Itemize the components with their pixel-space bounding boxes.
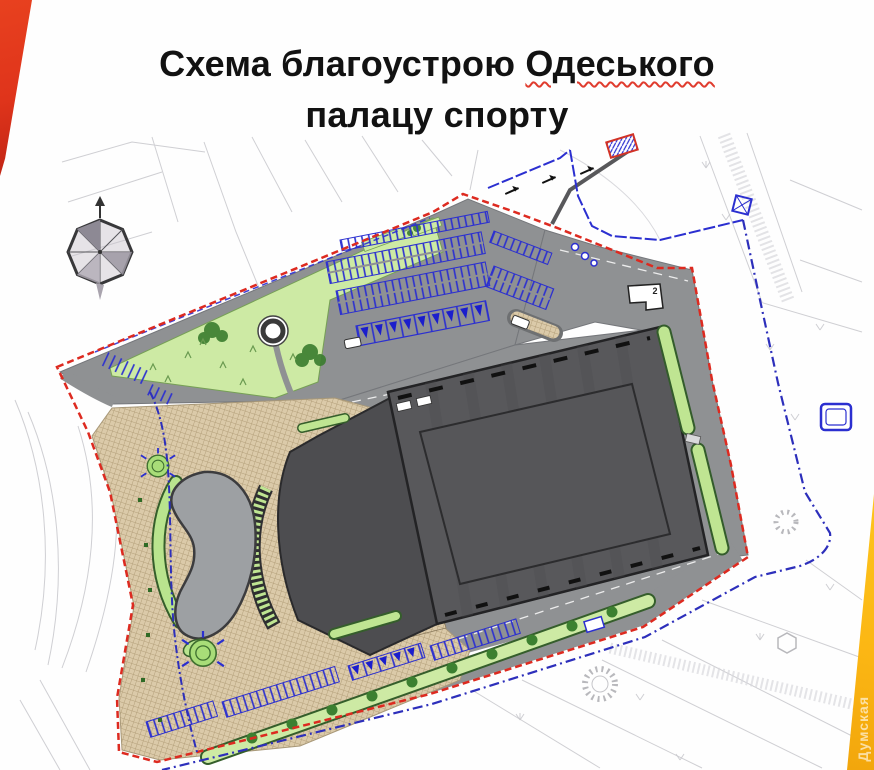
- cadastral-hexagon: [778, 633, 796, 653]
- watermark-brand: Думская: [855, 696, 871, 762]
- service-building-label: 2: [652, 286, 657, 296]
- hatched-parcel-icon: [606, 134, 637, 157]
- wind-rose-compass: [68, 196, 132, 300]
- utility-chamber-icon-east: [821, 404, 851, 430]
- site-plan: 2: [0, 0, 874, 770]
- traffic-arrows: [504, 165, 594, 194]
- north-entrance-drive: [552, 150, 630, 224]
